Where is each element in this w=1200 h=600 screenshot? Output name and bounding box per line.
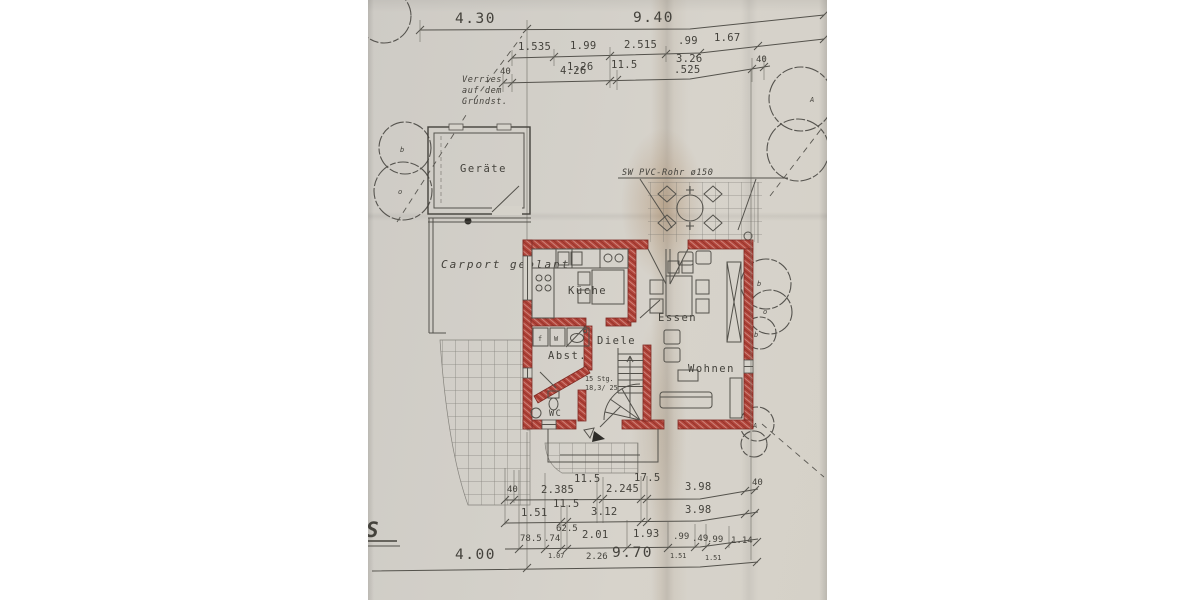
site-note-line3: Grundst. xyxy=(462,97,508,107)
dim-label: 1.93 xyxy=(633,528,660,540)
tree-mark: o xyxy=(763,308,767,316)
tree-mark: A xyxy=(809,96,814,104)
boundary-dash xyxy=(762,424,824,477)
dim-label: 1.67 xyxy=(714,32,741,44)
shed-label: Geräte xyxy=(460,163,507,175)
tree-icon xyxy=(357,0,411,43)
dim-label: 3.98 xyxy=(685,481,712,493)
room-label-wc: WC xyxy=(549,409,562,419)
carport-post xyxy=(465,218,472,225)
driveway-paving xyxy=(440,340,530,505)
dim-label: 2.01 xyxy=(582,529,609,541)
room-label-storage: Abst. xyxy=(548,350,587,362)
dim-label: 2.26 xyxy=(586,552,608,562)
stairs-note-line1: 15 Stg. xyxy=(585,375,614,383)
photo-of-floor-plan: A b o b A b o xyxy=(0,0,1200,600)
dim-label: 9.40 xyxy=(633,10,674,26)
dim-label: 2.515 xyxy=(624,39,657,51)
site-note-line1: Verries xyxy=(462,75,502,85)
tree-mark: o xyxy=(398,188,402,196)
room-label-kitchen: Küche xyxy=(568,285,607,297)
dim-label: 11.5 xyxy=(611,59,638,71)
terrace: SW PVC-Rohr ø150 xyxy=(618,168,788,243)
dim-label: 1.51 xyxy=(705,554,721,562)
dim-label: 78.5 xyxy=(520,534,542,544)
utility-appliances: f W xyxy=(533,328,589,346)
tree-icon xyxy=(379,122,431,174)
dim-label: 11.5 xyxy=(574,473,601,485)
door-leaf xyxy=(540,372,556,388)
entry-path-paving xyxy=(545,443,638,473)
dim-label: 1.51 xyxy=(670,552,686,560)
appliance-label-w: W xyxy=(554,335,559,343)
fragment-letter: S xyxy=(366,518,379,542)
dim-label: .74 xyxy=(544,534,560,544)
room-label-hall: Diele xyxy=(597,335,636,347)
edge-text-fragment: S xyxy=(356,518,400,546)
dim-label: 1.51 xyxy=(521,507,548,519)
dim-label: 40 xyxy=(507,485,518,495)
tree-icon xyxy=(741,431,767,457)
shed-roof-post xyxy=(449,124,463,130)
site-note: Verries auf dem Grundst. xyxy=(462,75,508,107)
stairs-note-line2: 18,3/ 25 xyxy=(585,384,618,392)
wall-south xyxy=(556,420,576,429)
dim-label: 1.07 xyxy=(548,552,564,560)
dim-label: 40 xyxy=(752,478,763,488)
dim-label: 4.30 xyxy=(455,11,496,27)
site-note-line2: auf dem xyxy=(462,86,502,96)
dim-label: .525 xyxy=(674,64,701,76)
stairs: 15 Stg. 18,3/ 25 xyxy=(585,348,643,420)
wall-east xyxy=(744,249,753,360)
dim-label: 40 xyxy=(756,55,767,65)
dim-label: 1.14 xyxy=(731,536,753,546)
tree-icon xyxy=(748,290,792,334)
wall-west xyxy=(523,378,532,429)
dim-label: .99 xyxy=(707,535,723,545)
dim-label: 2.245 xyxy=(606,483,639,495)
room-label-living: Wohnen xyxy=(688,363,735,375)
tree-icon xyxy=(374,162,432,220)
dim-label: 4.26 xyxy=(560,65,587,77)
dim-label: 1.99 xyxy=(570,40,597,52)
dim-label: 3.12 xyxy=(591,506,618,518)
boundary-dash xyxy=(770,128,822,196)
dim-label: 17.5 xyxy=(634,472,661,484)
wall-north xyxy=(523,240,648,249)
house: 15 Stg. 18,3/ 25 xyxy=(523,240,753,462)
tree-mark: b xyxy=(400,146,404,154)
shed: Geräte xyxy=(428,124,531,333)
dim-label: .99 xyxy=(678,35,698,47)
dim-label: 3.98 xyxy=(685,504,712,516)
dim-label: 2.385 xyxy=(541,484,574,496)
appliance-label-f: f xyxy=(538,335,542,343)
entry-door-leaf xyxy=(600,406,621,427)
tree-icon xyxy=(769,67,833,131)
wall-wc xyxy=(578,390,586,421)
dim-label: 4.00 xyxy=(455,547,496,563)
top-dimension-chains: 4.30 9.40 1.535 1.99 2.515 .99 1.67 xyxy=(416,10,828,240)
entry-marker-outline xyxy=(584,428,594,438)
tree-icon xyxy=(767,119,829,181)
dim-label: 1.535 xyxy=(518,41,551,53)
dim-label: .49 xyxy=(692,534,708,544)
wall-east xyxy=(744,373,753,421)
tree-mark: b xyxy=(754,331,758,339)
pipe-label: SW PVC-Rohr ø150 xyxy=(622,168,713,178)
wall-south xyxy=(678,420,753,429)
room-label-dining: Essen xyxy=(658,312,697,324)
wall-stair-living xyxy=(643,345,651,421)
floor-plan-drawing: A b o b A b o xyxy=(0,0,1200,600)
tree-mark: b xyxy=(757,280,761,288)
wall-kitchen-south xyxy=(531,318,586,326)
wall-kitchen-dining xyxy=(628,249,636,322)
entry-marker-arrow xyxy=(592,431,605,442)
dim-label: 9.70 xyxy=(612,545,653,561)
wall-west xyxy=(523,300,532,368)
dim-label: 11.5 xyxy=(553,498,580,510)
shed-roof-post xyxy=(497,124,511,130)
wall-west xyxy=(523,240,532,256)
dim-label: 62.5 xyxy=(556,524,578,534)
wall-kitchen-south xyxy=(606,318,631,326)
wall-north xyxy=(688,240,753,249)
carport-label: Carport geplant xyxy=(441,258,570,271)
dim-label: .99 xyxy=(673,532,689,542)
